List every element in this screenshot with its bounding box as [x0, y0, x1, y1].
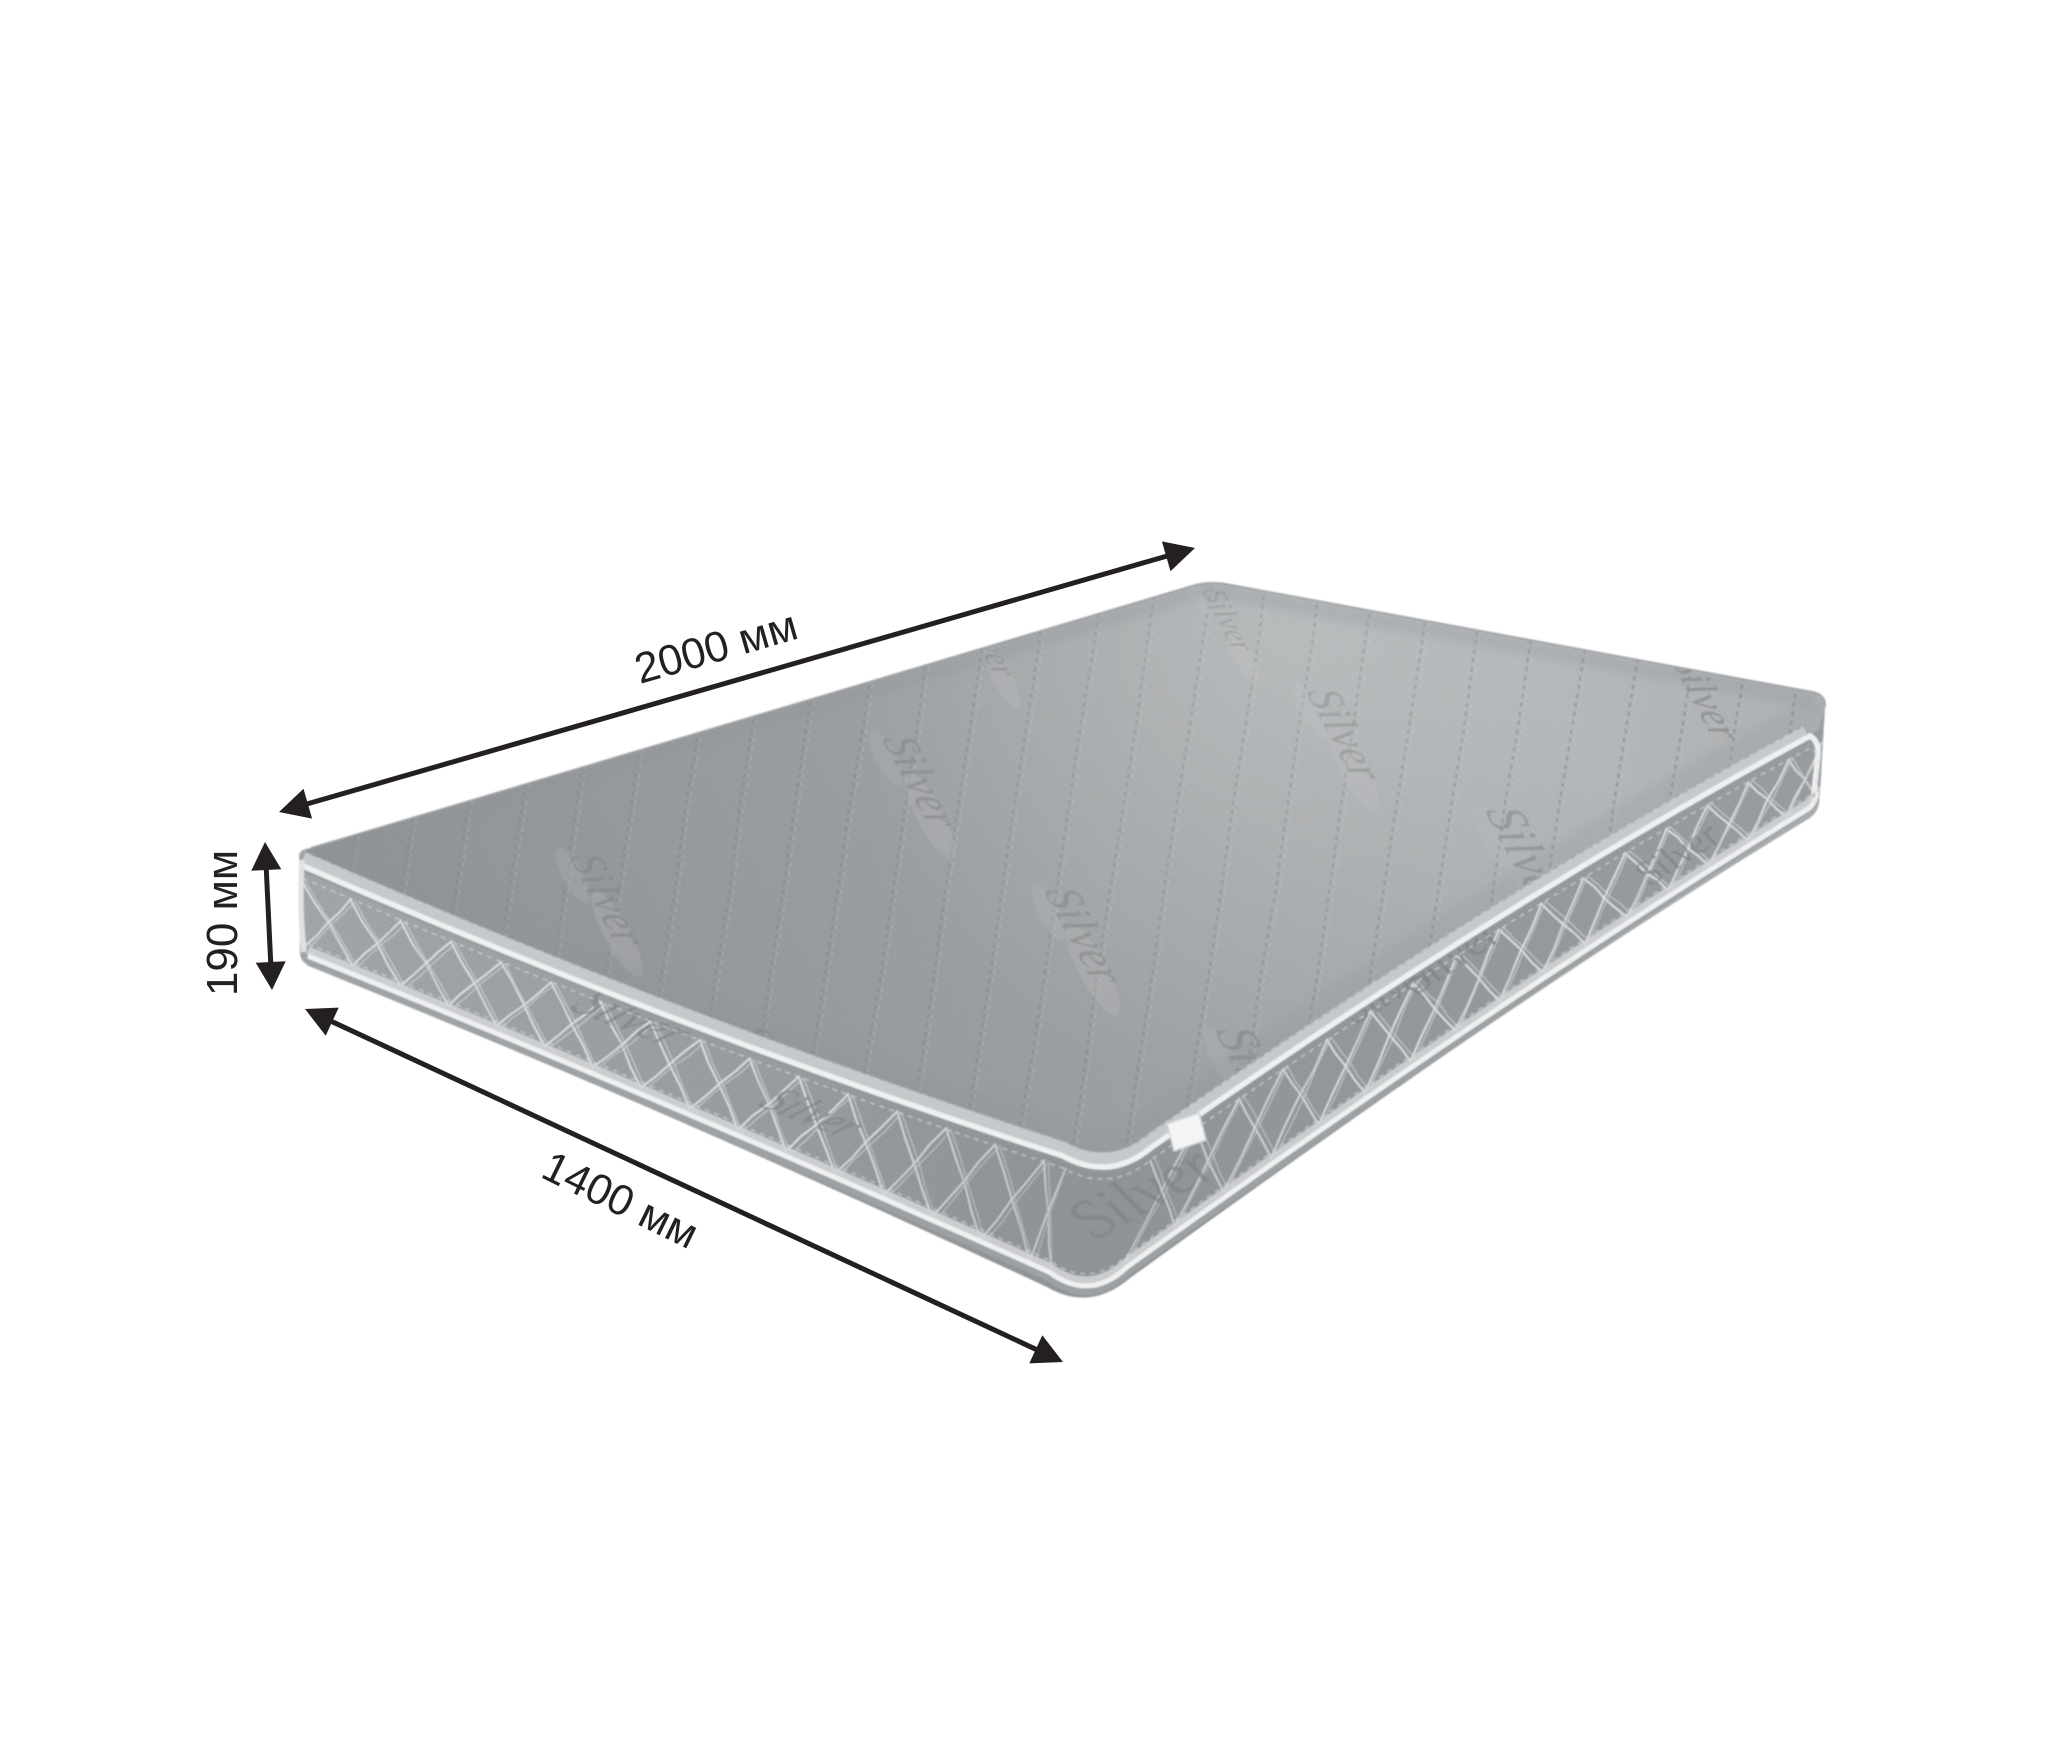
svg-text:190 мм: 190 мм — [198, 850, 247, 996]
